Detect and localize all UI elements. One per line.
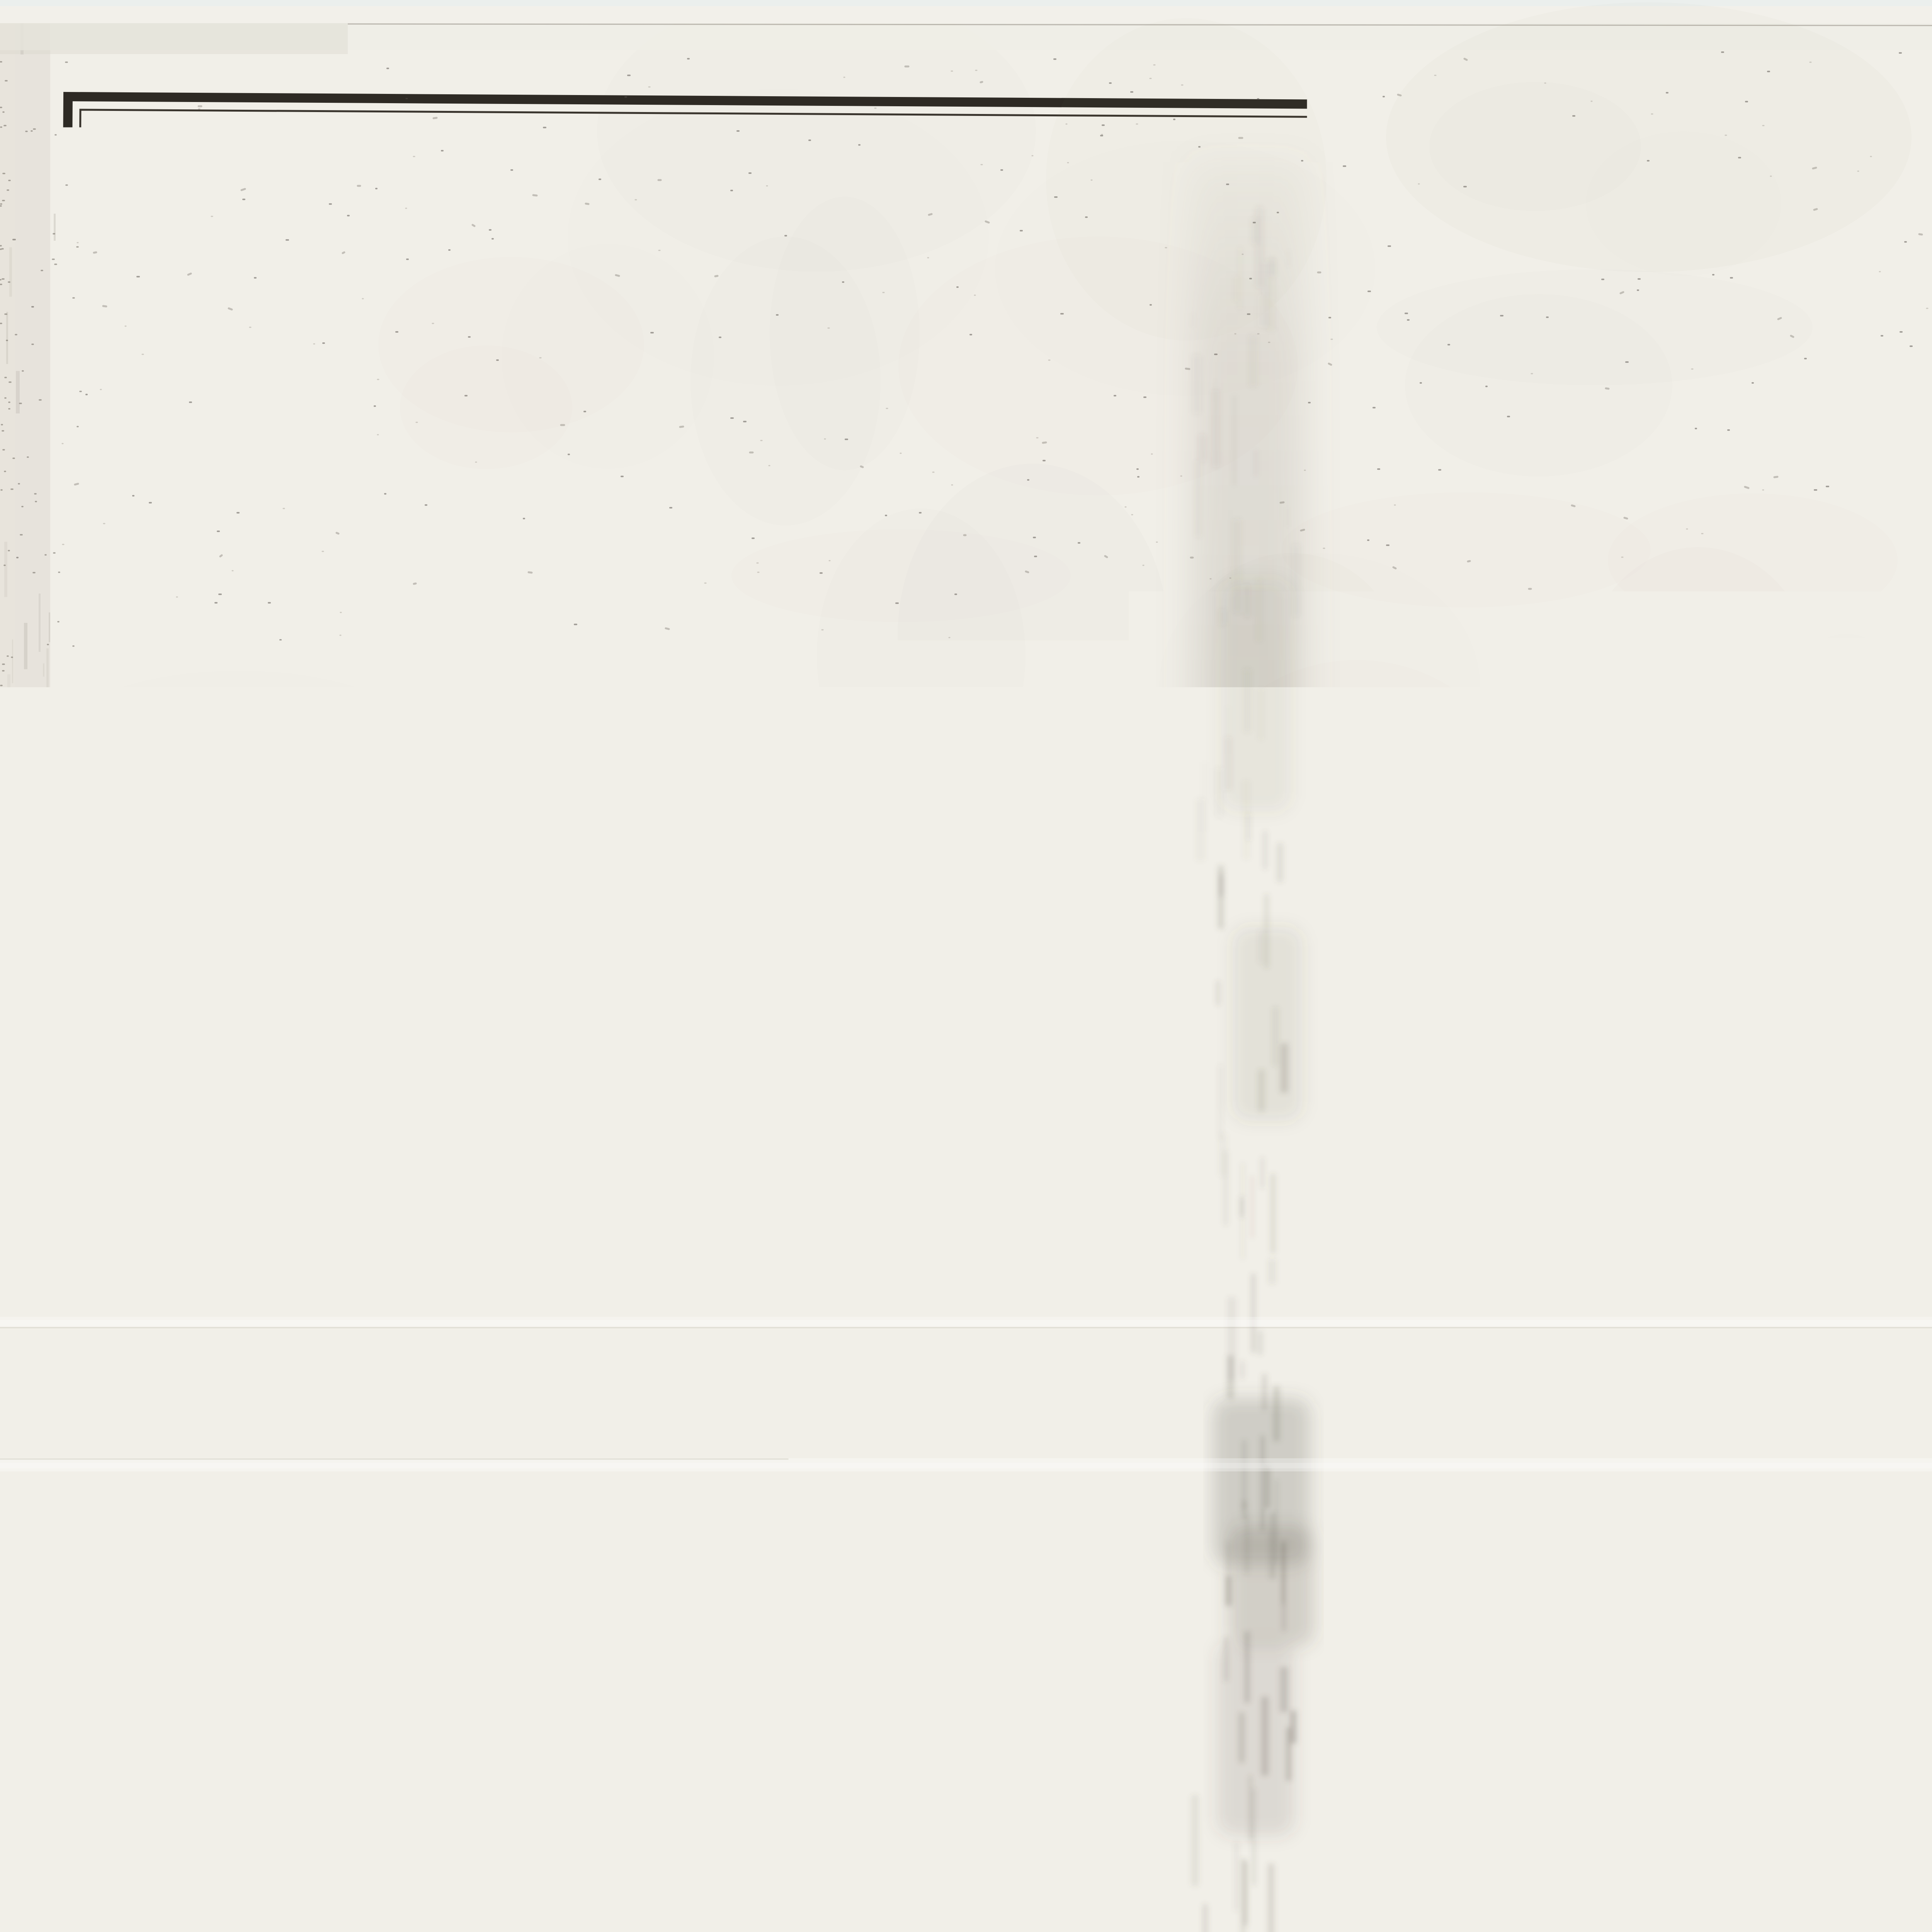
- svg-text:Tas de: Tas de: [946, 1379, 976, 1394]
- svg-text:Télégrphes: Télégrphes: [1043, 1854, 1091, 1866]
- svg-text:Moulin Noir: Moulin Noir: [694, 1509, 784, 1532]
- svg-text:Vaches: Vaches: [935, 1432, 968, 1446]
- svg-text:Eglise: Eglise: [1051, 1790, 1095, 1810]
- svg-text:Section F.: Section F.: [1558, 1793, 1687, 1835]
- svg-text:Les: Les: [1839, 1332, 1865, 1353]
- svg-text:de l’Ile .: de l’Ile .: [602, 1351, 663, 1374]
- svg-text:La Folie: La Folie: [1776, 1252, 1835, 1271]
- svg-text:St Denis: St Denis: [1329, 1706, 1388, 1727]
- svg-text:de la: de la: [1530, 811, 1557, 826]
- svg-text:Pierres: Pierres: [932, 1396, 967, 1411]
- svg-text:Petit Nanterre: Petit Nanterre: [1801, 379, 1913, 401]
- svg-text:Porte: Porte: [1338, 1686, 1375, 1706]
- svg-text:Les: Les: [1709, 1396, 1731, 1414]
- svg-text:Section A.: Section A.: [396, 1394, 529, 1437]
- svg-text:Section E.: Section E.: [1877, 1506, 1932, 1549]
- svg-text:Mon Déple: Mon Déple: [1514, 828, 1577, 844]
- svg-text:la: la: [1793, 817, 1802, 830]
- svg-text:aux: aux: [946, 1415, 964, 1429]
- svg-text:à: à: [1816, 992, 1823, 1008]
- svg-text:Fessières.: Fessières.: [1071, 1419, 1140, 1441]
- svg-text:Le Loup: Le Loup: [1483, 1634, 1540, 1656]
- svg-text:Les: Les: [1708, 1022, 1730, 1039]
- svg-text:de: de: [1650, 973, 1664, 990]
- svg-text:Postes et: Postes et: [1047, 1842, 1085, 1854]
- svg-text:Presles: Presles: [934, 1358, 969, 1372]
- svg-text:et les: et les: [942, 1341, 967, 1355]
